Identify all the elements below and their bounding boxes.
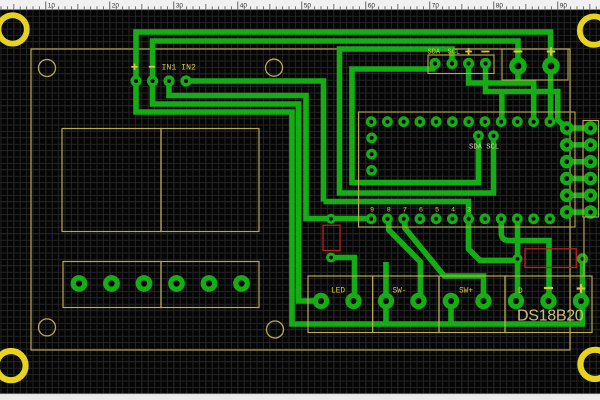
- svg-text:SW-: SW-: [393, 288, 407, 296]
- svg-text:20: 20: [112, 3, 120, 10]
- svg-text:60: 60: [368, 3, 376, 10]
- svg-text:80: 80: [496, 3, 504, 10]
- svg-text:3: 3: [467, 207, 471, 215]
- svg-text:40: 40: [240, 3, 248, 10]
- svg-text:6: 6: [419, 207, 423, 215]
- svg-text:7: 7: [403, 207, 407, 215]
- svg-text:SDA: SDA: [428, 49, 441, 57]
- svg-text:9: 9: [370, 207, 374, 215]
- svg-text:5: 5: [435, 207, 439, 215]
- svg-text:LED: LED: [331, 288, 345, 296]
- svg-text:8: 8: [387, 207, 391, 215]
- svg-text:70: 70: [432, 3, 440, 10]
- svg-text:SDA SCL: SDA SCL: [469, 144, 499, 152]
- svg-text:4: 4: [451, 207, 455, 215]
- svg-text:DS18B20: DS18B20: [517, 308, 584, 325]
- svg-text:SCL: SCL: [448, 49, 461, 57]
- svg-text:IN1 IN2: IN1 IN2: [162, 64, 196, 73]
- svg-text:50: 50: [304, 3, 312, 10]
- svg-text:10: 10: [48, 3, 56, 10]
- svg-text:D: D: [518, 288, 523, 296]
- svg-text:30: 30: [176, 3, 184, 10]
- svg-text:90: 90: [560, 3, 568, 10]
- svg-text:SW+: SW+: [459, 288, 473, 296]
